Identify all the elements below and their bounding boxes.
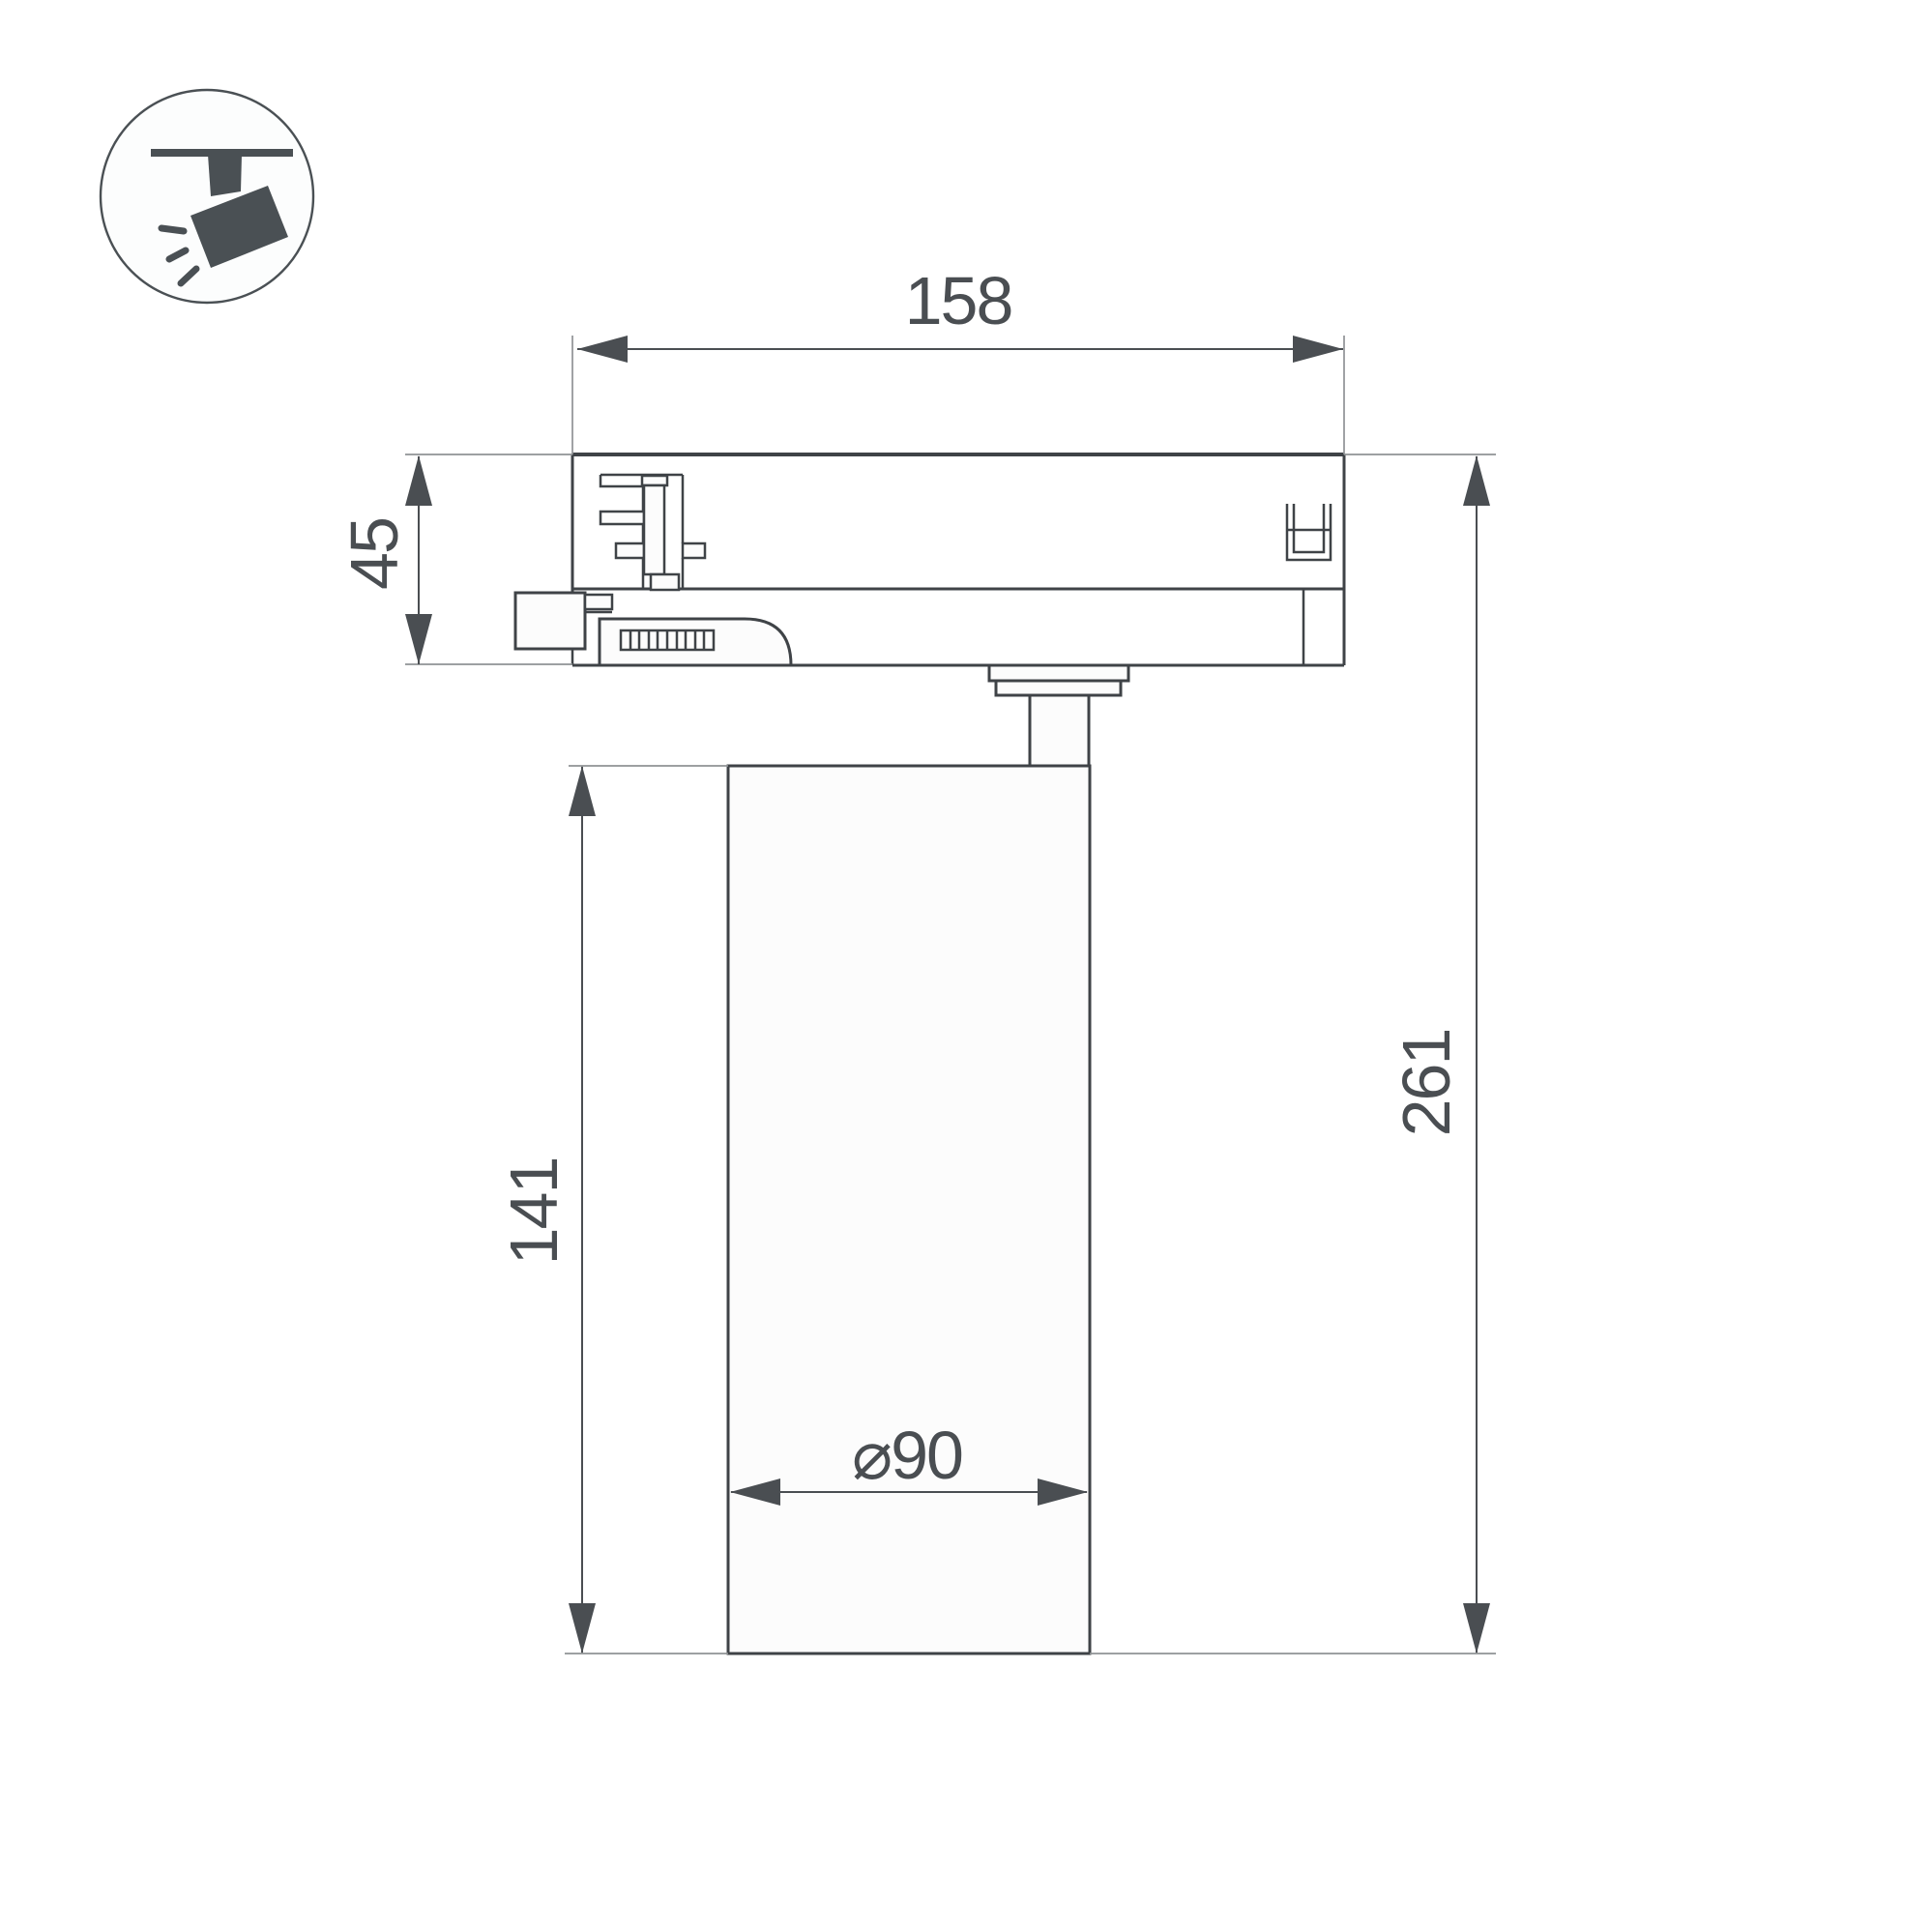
- contact-comb: [600, 475, 705, 590]
- comb-pin-foot: [651, 574, 679, 590]
- mounting-neck: [989, 665, 1128, 766]
- comb-tooth-upper: [600, 512, 644, 524]
- comb-tooth-lower: [616, 543, 644, 558]
- dim-45-label: 45: [337, 518, 412, 590]
- dim-body-141: 141: [496, 766, 728, 1654]
- track-spotlight-icon: [101, 90, 313, 303]
- comb-pin-cap: [642, 476, 667, 485]
- dim-45-arrow-bottom: [405, 614, 432, 664]
- dim-261-label: 261: [1389, 1030, 1464, 1137]
- dim-158-arrow-left: [577, 336, 628, 363]
- dim-141-label: 141: [496, 1158, 571, 1266]
- dim-141-arrow-top: [569, 766, 596, 816]
- neck-step-lower: [996, 681, 1121, 695]
- dim-261-arrow-bottom: [1463, 1603, 1490, 1654]
- track-adapter: [515, 454, 1344, 665]
- dim-90-label: ⌀90: [852, 1418, 962, 1493]
- clip-inner: [1294, 504, 1324, 552]
- comb-right-tab: [683, 543, 705, 558]
- icon-circle: [101, 90, 313, 303]
- dim-158-label: 158: [905, 263, 1012, 338]
- dim-45-arrow-top: [405, 455, 432, 506]
- latch-block: [515, 593, 585, 649]
- dim-141-arrow-bottom: [569, 1603, 596, 1654]
- neck-stem: [1030, 695, 1089, 766]
- dim-width-158: 158: [572, 263, 1344, 454]
- comb-pin: [644, 485, 664, 574]
- neck-step-upper: [989, 665, 1128, 681]
- lamp-body-cylinder: [728, 766, 1090, 1654]
- dimension-drawing: 158 45 141 261 ⌀90: [0, 0, 1932, 1932]
- dim-total-261: 261: [1090, 454, 1496, 1654]
- contact-clip: [1287, 504, 1331, 560]
- dim-158-arrow-right: [1293, 336, 1343, 363]
- dim-261-arrow-top: [1463, 455, 1490, 506]
- latch-detail-rect: [585, 595, 612, 609]
- drawing-page: 158 45 141 261 ⌀90: [0, 0, 1932, 1932]
- comb-spine: [600, 475, 683, 589]
- icon-stem: [208, 155, 242, 196]
